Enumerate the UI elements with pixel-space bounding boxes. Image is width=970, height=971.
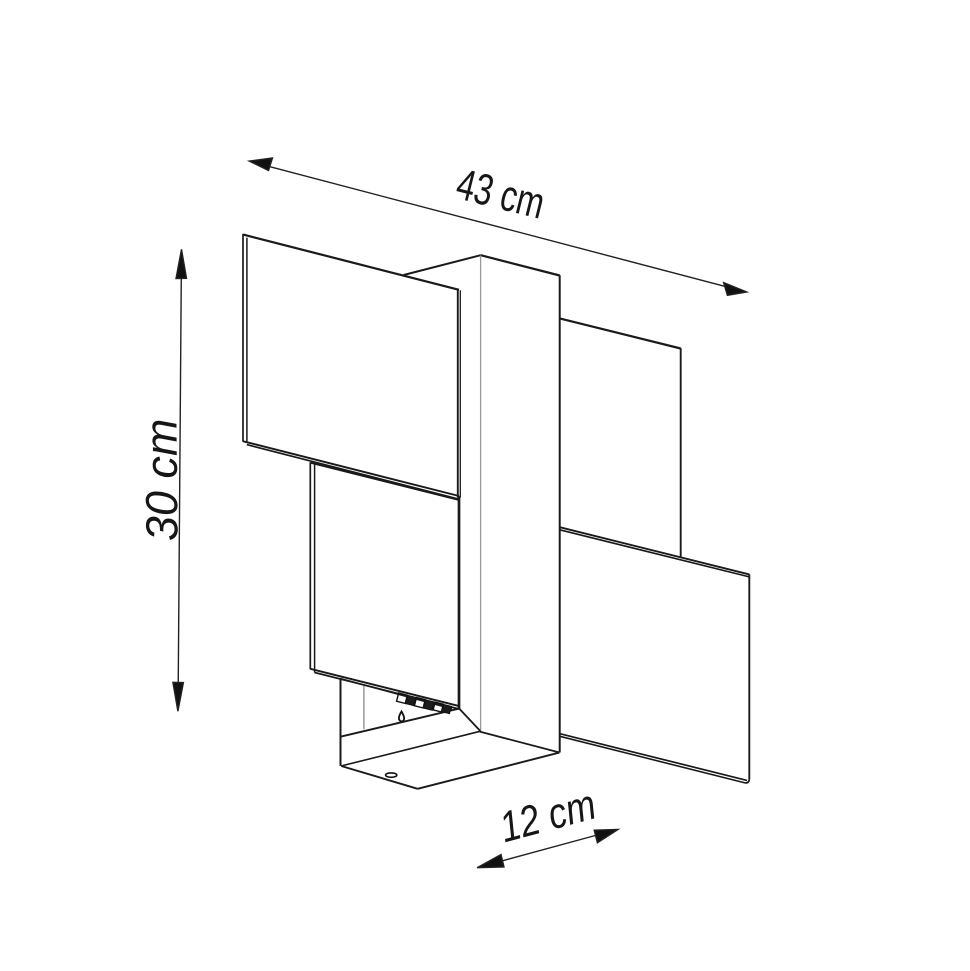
svg-text:30 cm: 30 cm bbox=[135, 418, 187, 541]
